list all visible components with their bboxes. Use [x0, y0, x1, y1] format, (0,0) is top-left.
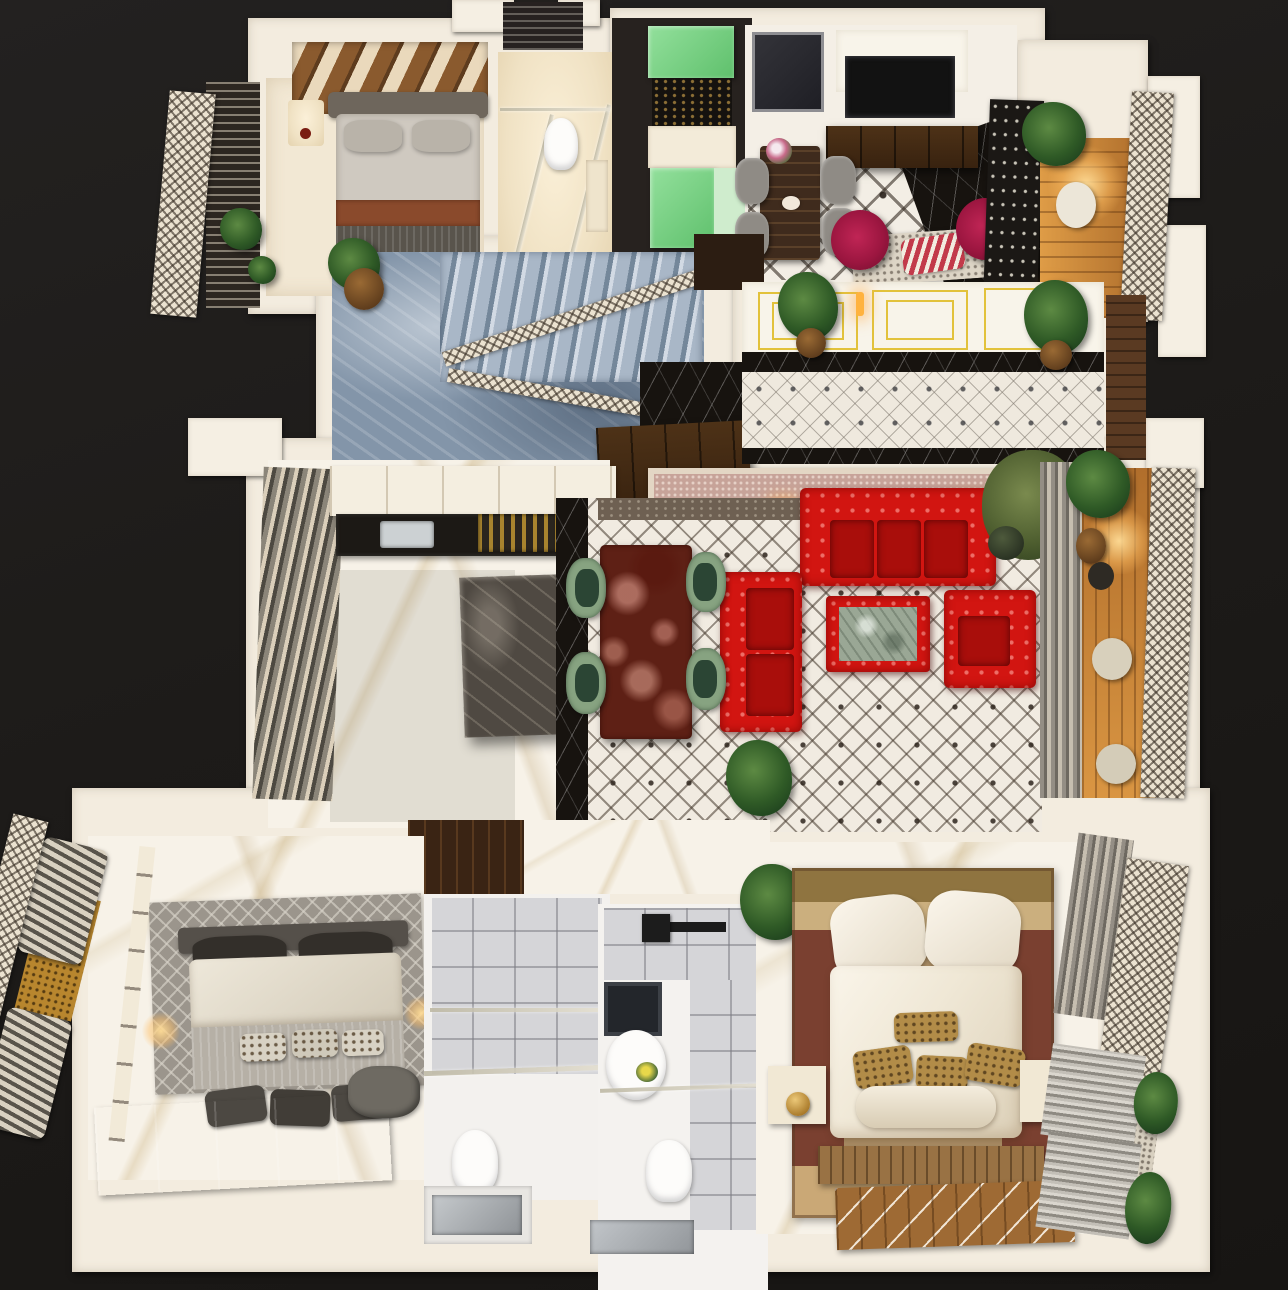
coffee-table-top [839, 607, 917, 661]
kitchen-window-curtains [252, 467, 344, 802]
vent-dark-top [503, 2, 583, 50]
gold-pillow-center [893, 1011, 958, 1043]
bed-end-bench [818, 1146, 1044, 1184]
flower-vase [766, 138, 792, 164]
bed-pillow [412, 120, 470, 152]
balcony-mid-curtains [1040, 462, 1082, 798]
plant [248, 256, 276, 284]
green-chair-seat [693, 563, 717, 601]
kitchen-island [459, 574, 563, 737]
striped-lounger [0, 1006, 73, 1140]
green-chair [566, 652, 606, 714]
pantry-counter-white [648, 126, 736, 168]
shower-glass-panel [430, 1008, 602, 1012]
balcony-stool [1092, 638, 1132, 680]
sofa-seat-cushion [830, 520, 874, 578]
armchair-seat [958, 616, 1010, 666]
plant-pot [344, 268, 384, 310]
pantry-upper-cabinet [648, 26, 734, 78]
bed-front-roll [856, 1086, 996, 1128]
balcony-chair [1056, 182, 1096, 228]
sofa-seat-cushion [877, 520, 921, 578]
green-chair-seat [575, 569, 599, 607]
bottom-corridor-wood [408, 820, 524, 894]
sink-flowers [636, 1062, 658, 1082]
green-chair [566, 558, 606, 618]
green-chair-seat [575, 664, 599, 702]
kitchen-stove [478, 514, 558, 552]
bathroom-b-tile-wall-side [690, 980, 766, 1230]
bathroom-a-tile-wall [432, 898, 602, 1074]
plant [1066, 450, 1130, 518]
hallway-floor-tiles [742, 372, 1104, 448]
dining-window [752, 32, 824, 112]
shower-head [642, 914, 670, 942]
tv-screen [845, 56, 955, 118]
toilet [544, 118, 578, 170]
dinner-plate [782, 196, 800, 210]
kitchen-sink [380, 521, 434, 548]
bed-runner-rust [336, 200, 480, 226]
maroon-armchair [831, 210, 889, 270]
wainscot-gold-frame [886, 300, 954, 340]
red-armchair [944, 590, 1036, 688]
shower-tray [590, 1220, 694, 1254]
green-chair-seat [693, 660, 717, 698]
pillow-pile [348, 1066, 420, 1118]
sofa-seat-cushion [746, 588, 794, 650]
vanity-mirror [604, 982, 662, 1036]
bed-pillow [923, 888, 1024, 978]
plant-pot [1076, 528, 1106, 564]
plant [726, 740, 792, 816]
plant-pot-dark [1088, 562, 1114, 590]
toilet [646, 1140, 692, 1202]
pantry-shelf-black [652, 78, 732, 126]
master-bed [828, 890, 1024, 1162]
sofa-seat-cushion [924, 520, 968, 578]
laundry-tray-steel [432, 1195, 522, 1235]
shower-glass-rail [500, 108, 610, 111]
toilet [452, 1130, 498, 1194]
floor-plan-render [0, 0, 1288, 1290]
sofa-seat-cushion [746, 654, 794, 716]
green-floor-mat [94, 1092, 392, 1195]
coffee-table-frame [826, 596, 930, 672]
plant-pot [1040, 340, 1072, 370]
red-sofa-3seat [800, 488, 996, 586]
accent-pillow [341, 1029, 384, 1056]
bed-pillow [344, 120, 402, 152]
plant [1022, 102, 1086, 166]
plant-pot [796, 328, 826, 358]
hallway-right-wood [1106, 295, 1146, 460]
balcony-stool [1096, 744, 1136, 784]
accent-pillow [291, 1029, 338, 1059]
gold-pillow [852, 1044, 915, 1090]
bed-duvet-top [189, 952, 403, 1029]
bathroom-b-tile-wall [604, 908, 762, 980]
green-chair [686, 648, 726, 710]
plant [220, 208, 262, 250]
dining-table-marble [600, 545, 692, 739]
accent-pillow [239, 1032, 286, 1062]
dining-chair [820, 156, 856, 204]
bath-shelf [586, 160, 608, 232]
plant-pot-olive [988, 526, 1024, 560]
wall-sconce [856, 292, 864, 316]
deco-red-ball [300, 128, 311, 139]
green-chair [686, 552, 726, 612]
dining-chair [735, 158, 769, 204]
gold-sphere-decor [786, 1092, 810, 1116]
bedside-lamp [142, 1012, 180, 1050]
laundry-tray [424, 1186, 532, 1244]
red-loveseat [720, 572, 802, 732]
bottom-corridor-marble [524, 820, 770, 894]
bedroom2-side-table [288, 100, 324, 146]
